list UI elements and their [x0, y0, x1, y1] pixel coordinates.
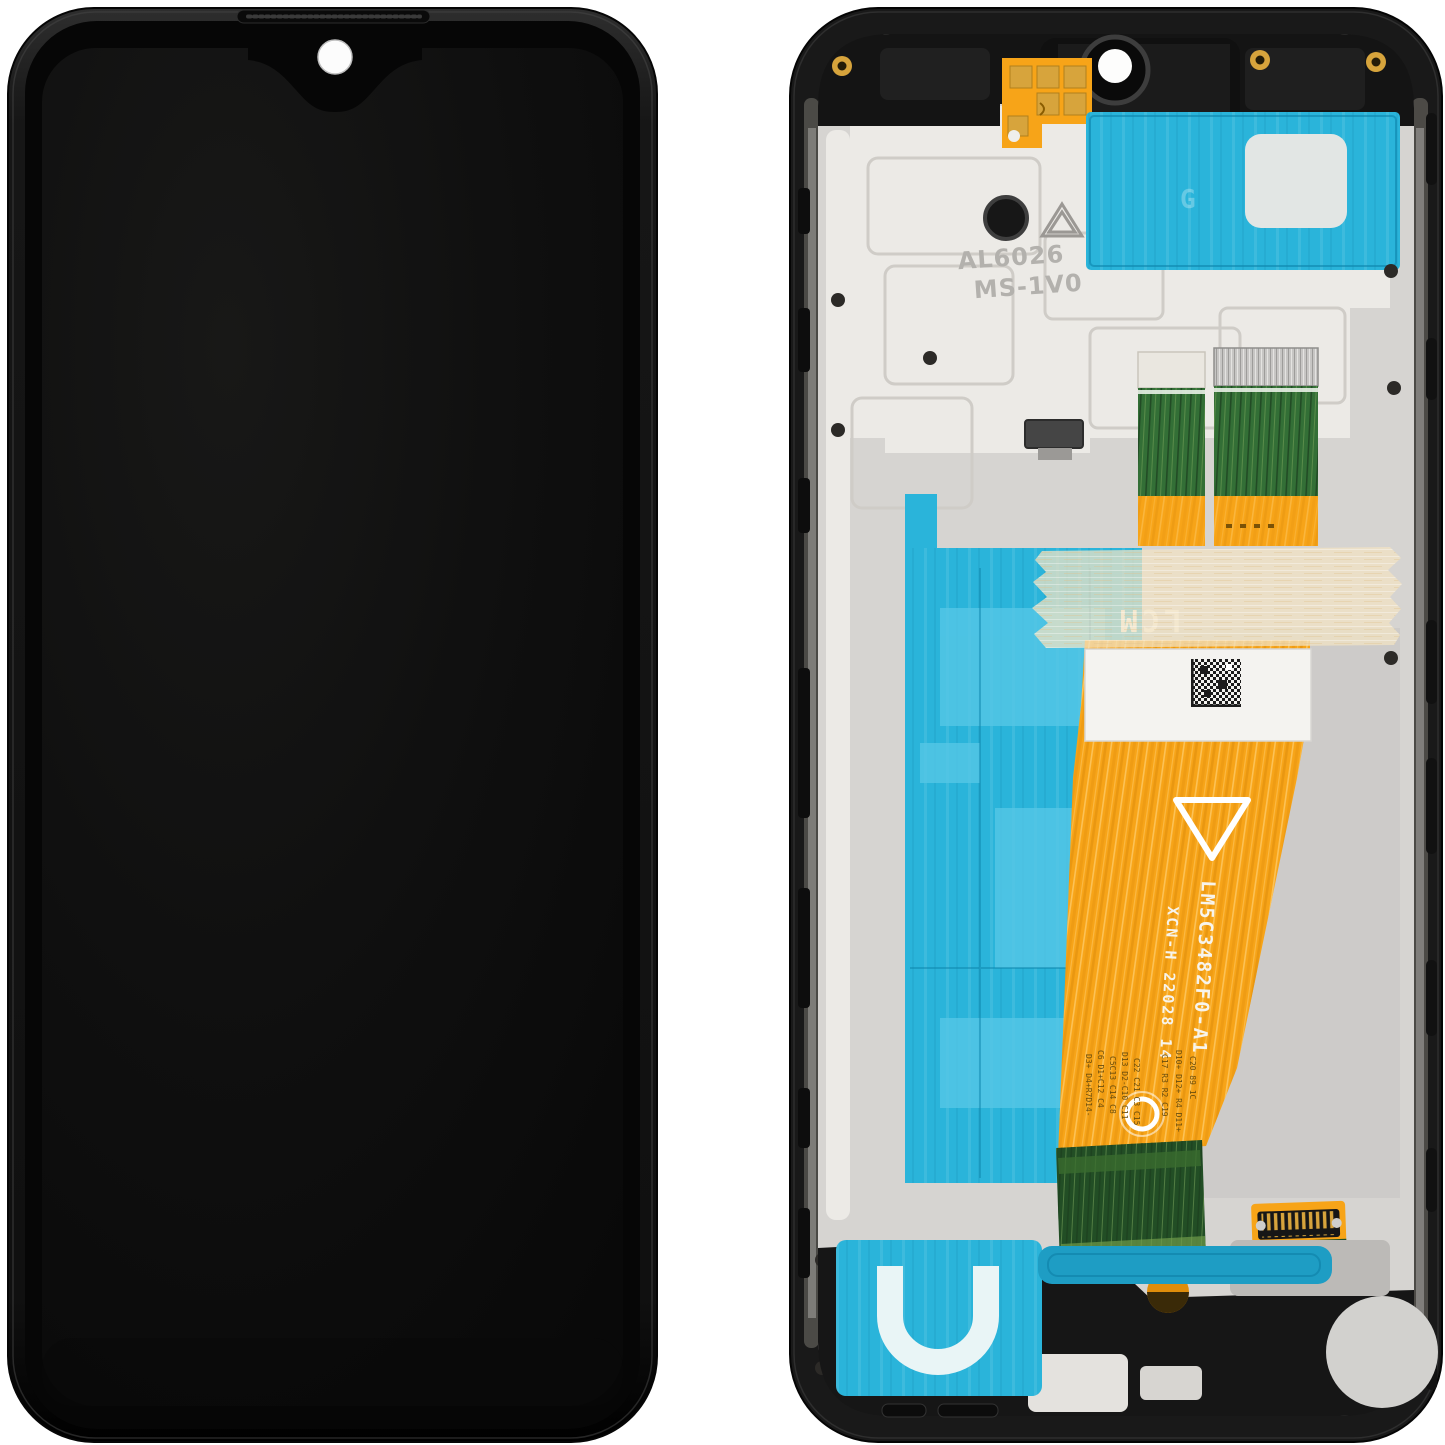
charge-port-plastic — [1028, 1354, 1128, 1412]
top-adhesive-sheet: G — [1086, 112, 1400, 270]
svg-text:C17 R3 R2 C19: C17 R3 R2 C19 — [1160, 1054, 1169, 1117]
svg-text:C5C13 C14 C8: C5C13 C14 C8 — [1108, 1056, 1117, 1114]
adhesive-cutout — [1245, 134, 1347, 228]
camera-opening-hole — [1098, 49, 1132, 83]
back-frame-assembly: G AL6026 MS-1V0 — [0, 0, 1445, 1445]
qr-label — [1085, 649, 1311, 741]
svg-text:C20 89 1C: C20 89 1C — [1188, 1056, 1197, 1100]
svg-text:D10+ D12+ R4 D11+: D10+ D12+ R4 D11+ — [1174, 1050, 1183, 1132]
flex-ribbon-left — [1138, 352, 1205, 546]
svg-text:C22 C21 C3 C15: C22 C21 C3 C15 — [1132, 1058, 1141, 1126]
metal-tab — [1025, 420, 1083, 448]
bottom-speaker-slots — [882, 1404, 998, 1417]
svg-text:D3+ D4+R7D14-: D3+ D4+R7D14- — [1084, 1054, 1093, 1117]
adhesive-watermark: G — [1180, 185, 1196, 215]
masking-tape — [1032, 547, 1402, 648]
mic-hole — [985, 197, 1027, 239]
qr-code — [1191, 659, 1241, 707]
speaker-pocket — [1326, 1296, 1438, 1408]
svg-text:C6 D1+C12 C4: C6 D1+C12 C4 — [1096, 1050, 1105, 1108]
flex-ribbon-right — [1214, 348, 1318, 546]
svg-text:D13 D2-C10 C11: D13 D2-C10 C11 — [1120, 1052, 1129, 1120]
